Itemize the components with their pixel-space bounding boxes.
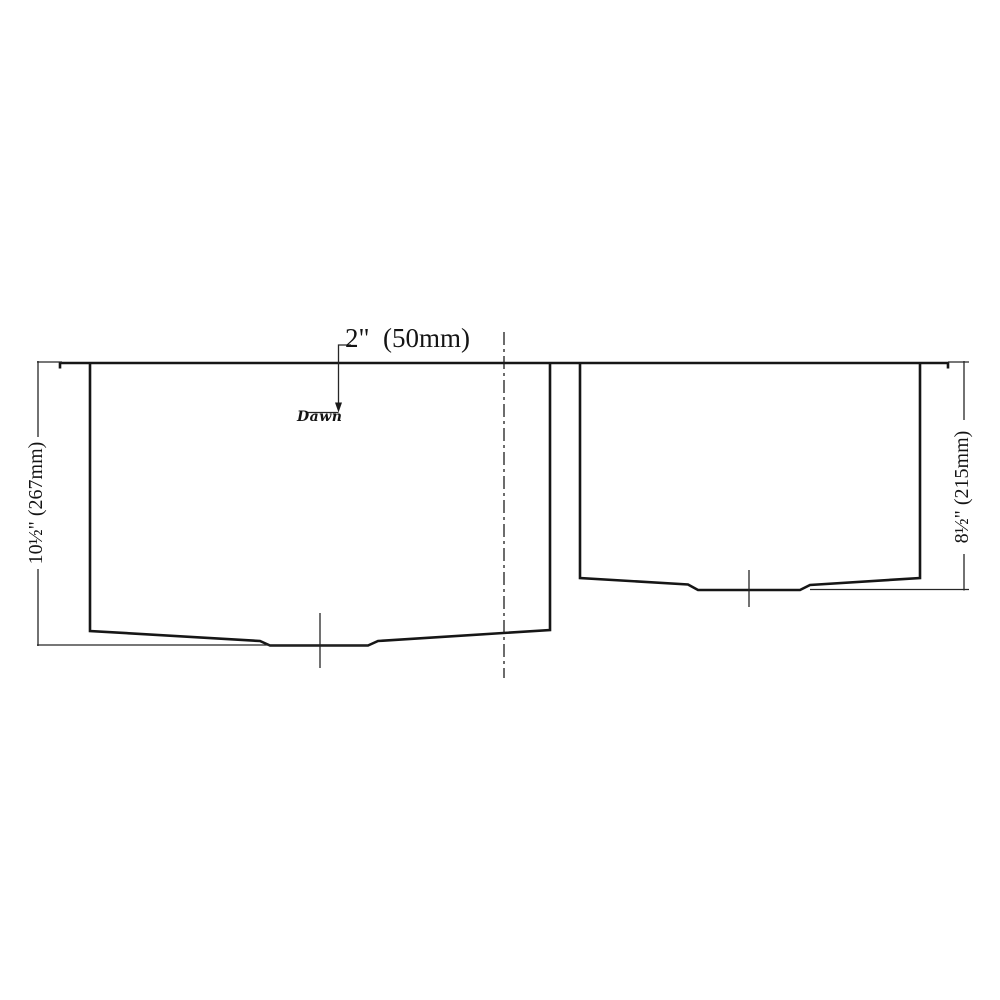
top-dimension-leader: [339, 345, 352, 405]
right-bowl-depth-label: 8½" (215mm): [952, 377, 976, 597]
drawing-lines: [0, 0, 1000, 1000]
left-bowl-depth-label: 10½" (267mm): [26, 393, 50, 613]
left-bowl-outline: [90, 363, 550, 646]
right-bowl-outline: [580, 363, 920, 590]
sink-technical-drawing: 2" (50mm) 10½" (267mm) 8½" (215mm) Dawn: [0, 0, 1000, 1000]
brand-logo: Dawn: [297, 410, 342, 424]
top-dimension-label: 2" (50mm): [345, 325, 470, 352]
